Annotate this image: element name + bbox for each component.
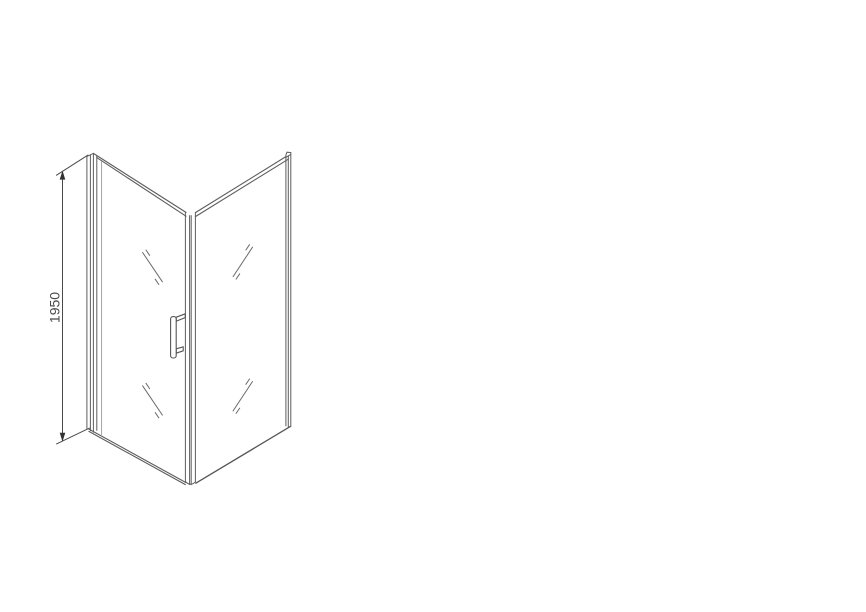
- svg-text:1950: 1950: [47, 292, 63, 323]
